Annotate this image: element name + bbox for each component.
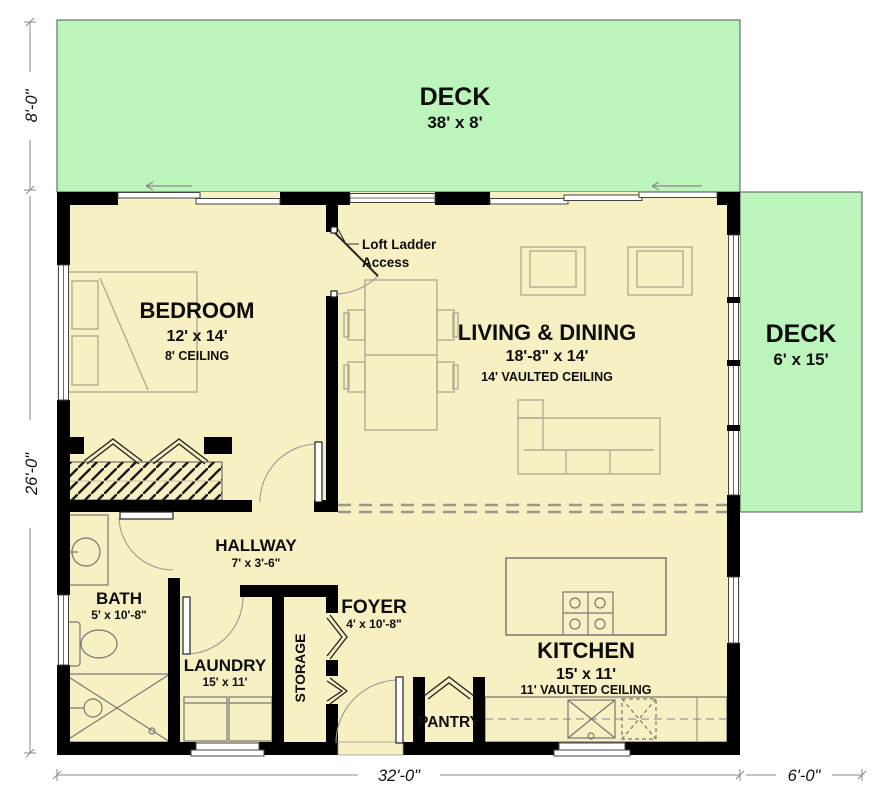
hallway-label: HALLWAY xyxy=(215,536,297,555)
laundry-window xyxy=(196,743,259,750)
kitchen-size: 15' x 11' xyxy=(556,666,616,683)
deck-top-label: DECK xyxy=(420,83,491,111)
bath-size: 5' x 10'-8" xyxy=(91,608,146,622)
front-door-threshold xyxy=(338,742,403,755)
storage-label: STORAGE xyxy=(292,634,308,703)
front-door xyxy=(396,677,403,743)
laundry-label: LAUNDRY xyxy=(184,656,267,675)
dim-bottom-main: 32'-0" xyxy=(378,767,421,785)
slider-door-window xyxy=(564,195,642,201)
kitchen-counter xyxy=(485,697,727,742)
bedroom-size: 12' x 14' xyxy=(167,328,228,345)
kitchen-island xyxy=(506,558,666,635)
laundry-size: 15' x 11' xyxy=(202,675,247,689)
slider-door-window xyxy=(196,199,280,205)
slider-door-window xyxy=(639,192,717,198)
kitchen-label: KITCHEN xyxy=(537,638,635,663)
deck-right-label: DECK xyxy=(766,320,837,348)
bath-label: BATH xyxy=(96,589,142,608)
pantry-label: PANTRY xyxy=(418,714,481,731)
deck-top-size: 38' x 8' xyxy=(427,113,482,132)
kitchen-ceiling: 11' VAULTED CEILING xyxy=(521,683,652,697)
kitchen-window xyxy=(559,743,625,750)
floor-plan-drawing: DECK 38' x 8' DECK 6' x 15' xyxy=(0,0,890,800)
foyer-label: FOYER xyxy=(341,597,407,618)
laundry-door xyxy=(183,597,190,654)
foyer-size: 4' x 10'-8" xyxy=(346,617,401,631)
bedroom-ceiling: 8' CEILING xyxy=(165,349,229,363)
dim-bottom-right: 6'-0" xyxy=(788,767,822,785)
bath-door xyxy=(120,512,173,519)
loft-ladder-note-line2: Access xyxy=(362,255,409,270)
floor-plan-page: DECK 38' x 8' DECK 6' x 15' xyxy=(0,0,890,800)
hallway-size: 7' x 3'-6" xyxy=(232,556,281,570)
slider-door-window xyxy=(118,193,200,199)
living-dining-ceiling: 14' VAULTED CEILING xyxy=(481,370,613,384)
living-dining-label: LIVING & DINING xyxy=(458,320,636,345)
dim-left-top: 8'-0" xyxy=(23,88,41,122)
bedroom-label: BEDROOM xyxy=(140,298,255,323)
bedroom-door xyxy=(315,442,322,502)
loft-ladder-note-line1: Loft Ladder xyxy=(362,237,437,252)
deck-right: DECK 6' x 15' xyxy=(740,192,862,512)
deck-right-size: 6' x 15' xyxy=(773,350,828,369)
slider-door-window xyxy=(490,199,568,205)
deck-top: DECK 38' x 8' xyxy=(57,20,740,192)
living-dining-size: 18'-8" x 14' xyxy=(506,348,589,365)
dim-left-bottom: 26'-0" xyxy=(23,452,41,496)
